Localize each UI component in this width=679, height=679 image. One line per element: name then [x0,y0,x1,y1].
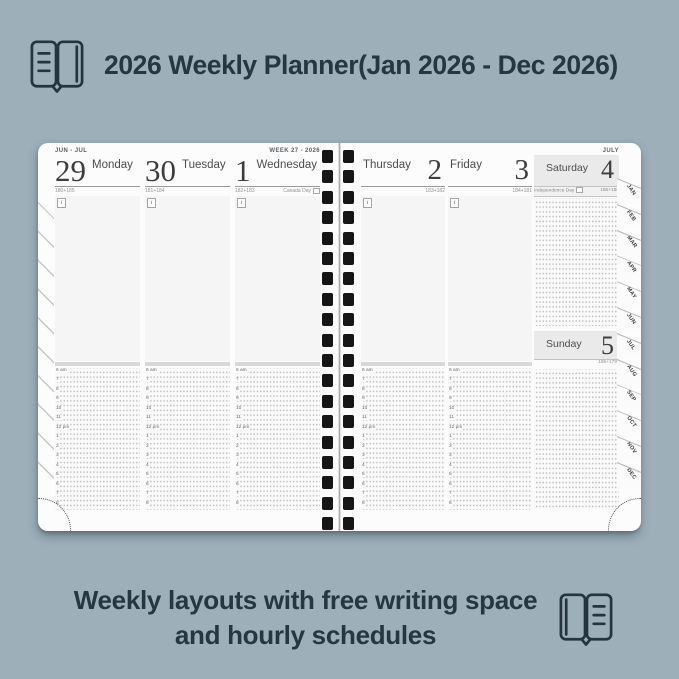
info-icon: i [147,198,156,208]
binding-hole [343,334,354,347]
day-name: Tuesday [182,155,226,171]
hour-label: 10 [362,406,368,411]
month-tab-aug: AUG [617,359,641,385]
hour-label: 3 [236,453,240,458]
section-divider [448,362,532,366]
day-of-year: 181+184 [145,187,165,196]
hour-label: 4 [56,463,60,468]
binding-hole [343,313,354,326]
hour-label: 6 am [236,368,248,373]
hour-label: 6 [449,482,453,487]
footer-caption: Weekly layouts with free writing space a… [74,583,538,653]
binding-hole [343,293,354,306]
hour-label: 2 [449,444,453,449]
binding-hole [322,313,333,326]
hour-label: 11 [362,415,368,420]
hour-label: 9 [449,396,453,401]
binding-hole [322,456,333,469]
free-writing-space: i [145,196,230,361]
hourly-schedule: 6 am789101112 pm12345678 [361,368,445,511]
day-of-year: 185+180 [600,187,619,196]
footer-line1: Weekly layouts with free writing space [74,585,538,615]
hour-label: 2 [146,444,150,449]
hour-label: 6 am [56,368,68,373]
hour-label: 9 [236,396,240,401]
weekend-column: Saturday 4 Independence Day 185+180 Sund… [534,143,619,531]
hour-label: 7 [146,377,150,382]
open-book-icon [557,590,615,646]
hour-label: 10 [236,406,242,411]
hour-label: 8 [236,501,240,506]
binding-hole [322,415,333,428]
hour-label: 8 [146,387,150,392]
binding-hole [343,415,354,428]
binding-hole [322,191,333,204]
hour-label: 4 [146,463,150,468]
header: 2026 Weekly Planner(Jan 2026 - Dec 2026) [28,32,651,98]
hour-label: 8 [146,501,150,506]
footer: Weekly layouts with free writing space a… [40,578,649,658]
hourly-schedule: 6 am789101112 pm12345678 [145,368,230,511]
day-name: Friday [448,155,482,171]
binding-hole [322,476,333,489]
hour-label: 6 am [449,368,461,373]
saturday-header: Saturday 4 [534,155,619,187]
hour-label: 3 [56,453,60,458]
hour-label: 1 [146,434,150,439]
hour-label: 2 [236,444,240,449]
hour-label: 7 [449,491,453,496]
day-column-thursday: Thursday 2 183+182 i 6 am789101112 pm123… [361,143,445,531]
binding-hole [322,354,333,367]
footer-line2: and hourly schedules [175,620,436,650]
hour-label: 7 [449,377,453,382]
binding-hole [322,497,333,510]
hour-label: 11 [236,415,242,420]
holiday-row: Independence Day 185+180 [534,187,619,197]
date-number: 2 [428,155,446,186]
hour-label: 7 [56,377,60,382]
hour-label: 3 [449,453,453,458]
binding-hole [322,436,333,449]
day-name: Wednesday [257,155,318,171]
binding-hole [322,374,333,387]
day-of-year: 186+179 [534,360,617,367]
binding-hole [343,191,354,204]
page-edge-stripes [38,196,54,490]
day-header: Friday 3 [448,155,532,187]
product-image: 2026 Weekly Planner(Jan 2026 - Dec 2026)… [0,0,679,679]
binding-hole [322,395,333,408]
hour-label: 5 [56,472,60,477]
hour-label: 10 [56,406,62,411]
month-tab-jan: JAN [617,178,641,204]
hour-label: 8 [236,387,240,392]
day-column-wednesday: 1 Wednesday 182+183 Canada Day i 6 am789… [235,143,320,531]
open-book-icon [28,37,86,93]
binding-hole [322,272,333,285]
day-of-year: 182+183 [235,187,255,196]
free-writing-space: i [235,196,320,361]
flag-icon [313,188,320,194]
day-name: Saturday [534,155,588,174]
day-of-year: 180+185 [55,187,75,196]
info-icon: i [237,198,246,208]
date-number: 29 [55,155,86,186]
binding-hole [322,150,333,163]
hour-label: 9 [146,396,150,401]
day-ordinal-row: 181+184 [145,187,230,196]
binding-hole [343,456,354,469]
binding-hole [343,517,354,530]
month-tab-oct: OCT [617,410,641,436]
day-ordinal-row: 184+181 [448,187,532,196]
date-number: 5 [601,331,619,361]
hour-label: 7 [236,377,240,382]
hour-label: 7 [362,377,366,382]
month-tab-jun: JUN [617,307,641,333]
hour-label: 10 [449,406,455,411]
hour-label: 8 [362,387,366,392]
binding-hole [322,232,333,245]
day-header: 29 Monday [55,155,140,187]
hourly-schedule: 6 am789101112 pm12345678 [55,368,140,511]
binding-hole [343,354,354,367]
info-icon: i [57,198,66,208]
month-tab-may: MAY [617,281,641,307]
day-header: Thursday 2 [361,155,445,187]
hour-label: 3 [362,453,366,458]
binding-hole [322,252,333,265]
hour-label: 11 [146,415,152,420]
section-divider [235,362,320,366]
month-tab-nov: NOV [617,436,641,462]
day-name: Thursday [361,155,411,171]
hour-label: 6 [146,482,150,487]
hour-label: 7 [362,491,366,496]
section-divider [145,362,230,366]
day-ordinal-row: 182+183 Canada Day [235,187,320,196]
binding-hole [343,150,354,163]
saturday-writing-space [534,198,619,326]
binding-hole [343,272,354,285]
sunday-writing-space [534,369,619,510]
month-tab-jul: JUL [617,333,641,359]
hour-label: 1 [56,434,60,439]
hour-label: 5 [146,472,150,477]
hour-label: 1 [362,434,366,439]
hour-label: 8 [362,501,366,506]
month-tab-feb: FEB [617,204,641,230]
page-title: 2026 Weekly Planner(Jan 2026 - Dec 2026) [104,50,618,81]
binding-hole [343,395,354,408]
planner-spread: JUN - JUL WEEK 27 - 2026 29 Monday 180+1… [38,143,640,531]
binding-hole [322,293,333,306]
hour-label: 6 am [146,368,158,373]
date-number: 30 [145,155,176,186]
hour-label: 12 pm [362,425,376,430]
sunday-header: Sunday 5 [534,331,619,360]
day-ordinal-row: 183+182 [361,187,445,196]
free-writing-space: i [361,196,445,361]
hour-label: 8 [56,387,60,392]
hour-label: 10 [146,406,152,411]
section-divider [55,362,140,366]
binding-hole [343,211,354,224]
month-tab-dec: DEC [617,462,641,488]
flag-icon [576,187,583,193]
day-name: Sunday [534,331,582,350]
binding-hole [343,497,354,510]
hour-label: 4 [362,463,366,468]
hour-label: 5 [236,472,240,477]
day-of-year: 183+182 [425,187,445,196]
hour-label: 9 [56,396,60,401]
binding-hole [343,252,354,265]
section-divider [361,362,445,366]
day-of-year: 184+181 [512,187,532,196]
hour-label: 2 [362,444,366,449]
date-number: 1 [235,155,251,186]
binding-hole [343,374,354,387]
hour-label: 6 [362,482,366,487]
hour-label: 1 [236,434,240,439]
hour-label: 6 [236,482,240,487]
day-column-friday: Friday 3 184+181 i 6 am789101112 pm12345… [448,143,532,531]
hour-label: 3 [146,453,150,458]
binding-hole [322,334,333,347]
hour-label: 9 [362,396,366,401]
free-writing-space: i [448,196,532,361]
binding-hole [343,170,354,183]
info-icon: i [450,198,459,208]
hour-label: 7 [236,491,240,496]
month-tab-sep: SEP [617,384,641,410]
hour-label: 12 pm [449,425,463,430]
holiday-label: Independence Day [534,187,583,196]
planner-left-page: JUN - JUL WEEK 27 - 2026 29 Monday 180+1… [38,143,339,531]
hour-label: 11 [449,415,455,420]
hour-label: 4 [449,463,453,468]
planner-right-page: JULY Thursday 2 183+182 i 6 am789101112 … [340,143,641,531]
hourly-schedule: 6 am789101112 pm12345678 [448,368,532,511]
binding-hole [322,517,333,530]
month-tab-apr: APR [617,255,641,281]
day-header: 30 Tuesday [145,155,230,187]
hour-label: 6 [56,482,60,487]
hour-label: 7 [146,491,150,496]
binding-hole [322,211,333,224]
binding-hole [343,232,354,245]
month-tab-mar: MAR [617,230,641,256]
hour-label: 12 pm [56,425,70,430]
hour-label: 4 [236,463,240,468]
hour-label: 8 [449,387,453,392]
date-number: 4 [601,155,619,185]
hour-label: 12 pm [146,425,160,430]
hourly-schedule: 6 am789101112 pm12345678 [235,368,320,511]
hour-label: 5 [449,472,453,477]
info-icon: i [363,198,372,208]
hour-label: 6 am [362,368,374,373]
date-number: 3 [515,155,533,186]
day-ordinal-row: 180+185 [55,187,140,196]
binding-hole [322,170,333,183]
hour-label: 2 [56,444,60,449]
hour-label: 7 [56,491,60,496]
day-name: Monday [92,155,133,171]
hour-label: 11 [56,415,62,420]
binding-hole [343,436,354,449]
day-column-tuesday: 30 Tuesday 181+184 i 6 am789101112 pm123… [145,143,230,531]
hour-label: 12 pm [236,425,250,430]
holiday-label: Canada Day [283,187,320,196]
hour-label: 8 [449,501,453,506]
hour-label: 1 [449,434,453,439]
free-writing-space: i [55,196,140,361]
day-column-monday: 29 Monday 180+185 i 6 am789101112 pm1234… [55,143,140,531]
day-header: 1 Wednesday [235,155,320,187]
binding-hole [343,476,354,489]
hour-label: 5 [362,472,366,477]
